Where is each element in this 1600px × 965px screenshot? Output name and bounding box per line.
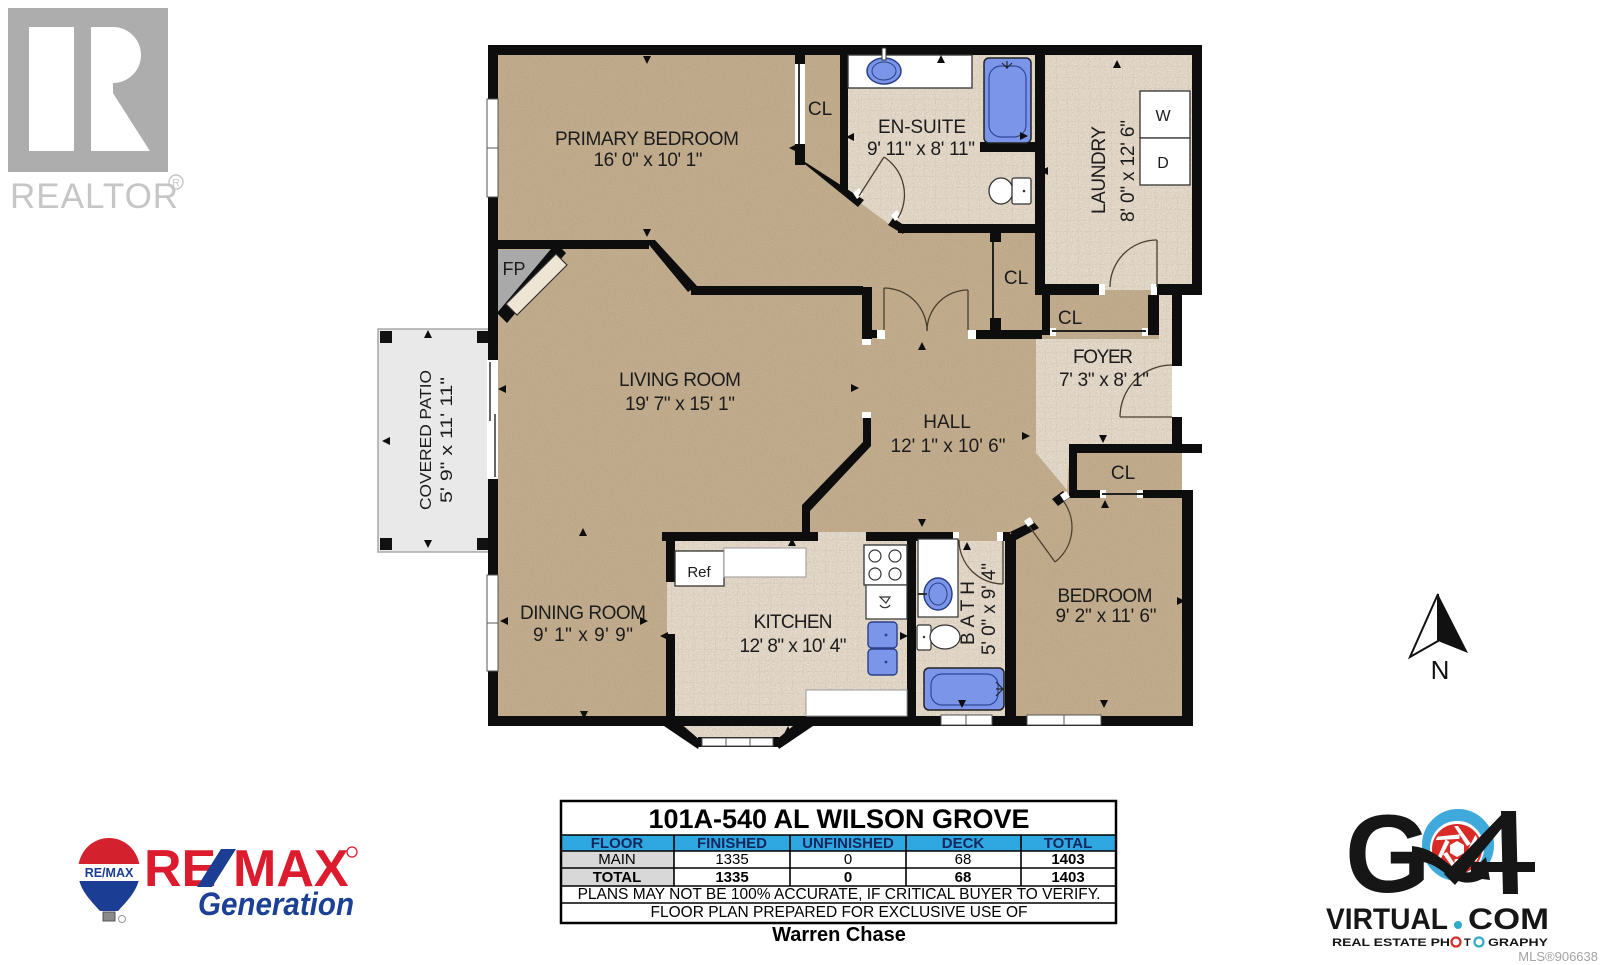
svg-text:FP: FP bbox=[502, 259, 525, 279]
svg-text:19' 7" x 15' 1": 19' 7" x 15' 1" bbox=[625, 394, 735, 415]
svg-text:FOYER: FOYER bbox=[1073, 347, 1133, 368]
svg-text:9' 2" x 11' 6": 9' 2" x 11' 6" bbox=[1056, 606, 1157, 627]
svg-text:7' 3" x 8' 1": 7' 3" x 8' 1" bbox=[1059, 370, 1149, 391]
svg-text:1335: 1335 bbox=[715, 851, 748, 868]
svg-text:RE/MAX: RE/MAX bbox=[85, 866, 134, 880]
svg-text:16' 0" x 10' 1": 16' 0" x 10' 1" bbox=[594, 150, 703, 171]
svg-text:REAL ESTATE PH: REAL ESTATE PH bbox=[1332, 937, 1450, 949]
svg-text:CL: CL bbox=[1004, 268, 1028, 289]
svg-text:Warren Chase: Warren Chase bbox=[772, 924, 906, 946]
svg-text:Ref: Ref bbox=[687, 564, 711, 581]
svg-text:CL: CL bbox=[1058, 308, 1082, 329]
svg-text:GRAPHY: GRAPHY bbox=[1488, 937, 1549, 949]
svg-text:68: 68 bbox=[955, 851, 972, 868]
svg-text:8' 0" x 12' 6": 8' 0" x 12' 6" bbox=[1118, 120, 1139, 222]
svg-text:MLS®906638: MLS®906638 bbox=[1518, 949, 1598, 964]
svg-text:MAIN: MAIN bbox=[598, 851, 636, 868]
svg-text:REALTOR: REALTOR bbox=[10, 177, 179, 216]
svg-text:TOTAL: TOTAL bbox=[593, 869, 642, 886]
svg-text:1335: 1335 bbox=[715, 869, 748, 886]
svg-text:DECK: DECK bbox=[942, 835, 985, 852]
svg-text:LAUNDRY: LAUNDRY bbox=[1089, 126, 1110, 214]
svg-text:COM: COM bbox=[1468, 903, 1549, 936]
svg-text:0: 0 bbox=[844, 851, 852, 868]
svg-text:W: W bbox=[1155, 108, 1171, 125]
svg-text:T: T bbox=[1464, 937, 1471, 949]
svg-text:DINING ROOM: DINING ROOM bbox=[520, 603, 646, 624]
svg-text:12' 8" x 10' 4": 12' 8" x 10' 4" bbox=[740, 636, 847, 657]
svg-text:FINISHED: FINISHED bbox=[697, 835, 767, 852]
svg-text:FLOOR PLAN PREPARED FOR EXCLUS: FLOOR PLAN PREPARED FOR EXCLUSIVE USE OF bbox=[651, 904, 1028, 921]
svg-text:N: N bbox=[1431, 655, 1450, 685]
svg-text:KITCHEN: KITCHEN bbox=[754, 612, 833, 633]
svg-text:UNFINISHED: UNFINISHED bbox=[802, 835, 894, 852]
svg-text:5' 9" x 11' 11": 5' 9" x 11' 11" bbox=[437, 377, 456, 503]
svg-text:EN-SUITE: EN-SUITE bbox=[878, 117, 966, 138]
svg-text:BEDROOM: BEDROOM bbox=[1058, 586, 1153, 607]
svg-text:PRIMARY BEDROOM: PRIMARY BEDROOM bbox=[555, 129, 739, 150]
svg-text:CL: CL bbox=[808, 99, 832, 120]
svg-text:D: D bbox=[1157, 155, 1169, 172]
svg-text:TOTAL: TOTAL bbox=[1044, 835, 1093, 852]
svg-text:Generation: Generation bbox=[198, 886, 354, 922]
svg-text:COVERED PATIO: COVERED PATIO bbox=[418, 370, 435, 510]
svg-text:1403: 1403 bbox=[1051, 851, 1084, 868]
svg-text:LIVING ROOM: LIVING ROOM bbox=[619, 370, 741, 391]
svg-text:5' 0" x 9' 4": 5' 0" x 9' 4" bbox=[979, 563, 1000, 655]
svg-text:101A-540 AL WILSON GROVE: 101A-540 AL WILSON GROVE bbox=[648, 804, 1029, 834]
svg-text:R: R bbox=[172, 178, 179, 189]
svg-text:FLOOR: FLOOR bbox=[591, 835, 644, 852]
svg-text:9' 11" x 8' 11": 9' 11" x 8' 11" bbox=[867, 139, 975, 160]
svg-text:0: 0 bbox=[844, 869, 852, 886]
svg-text:HALL: HALL bbox=[923, 412, 971, 433]
svg-text:1403: 1403 bbox=[1051, 869, 1084, 886]
svg-text:9' 1" x 9' 9": 9' 1" x 9' 9" bbox=[533, 625, 633, 646]
svg-text:VIRTUAL: VIRTUAL bbox=[1326, 903, 1448, 936]
svg-text:68: 68 bbox=[955, 869, 972, 886]
svg-text:PLANS MAY NOT BE 100% ACCURATE: PLANS MAY NOT BE 100% ACCURATE, IF CRITI… bbox=[578, 886, 1101, 903]
svg-text:CL: CL bbox=[1111, 463, 1135, 484]
svg-text:12' 1" x 10' 6": 12' 1" x 10' 6" bbox=[891, 436, 1006, 457]
